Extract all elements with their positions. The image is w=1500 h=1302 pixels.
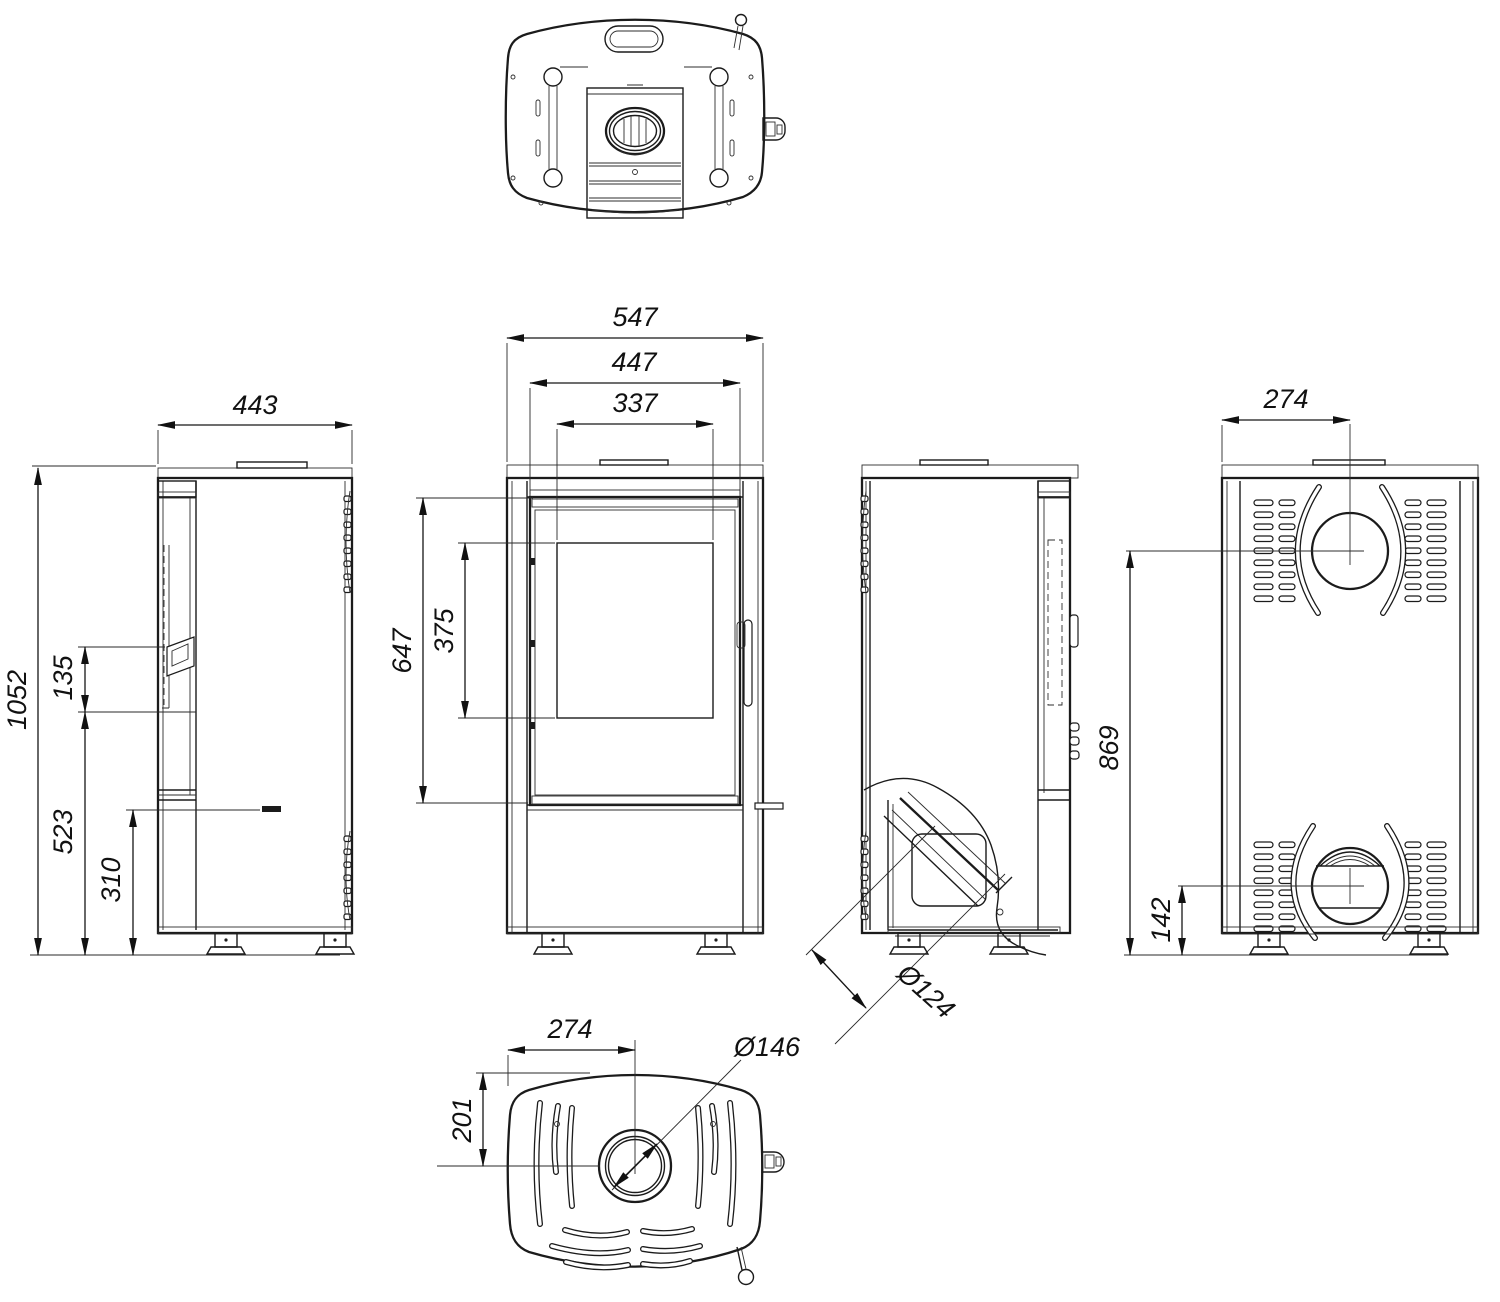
dim-side-width: 443 bbox=[232, 390, 277, 420]
drawing-sheet: 443 1052 135 523 310 547 447 337 647 375… bbox=[0, 0, 1500, 1302]
bottom-view bbox=[508, 1075, 784, 1285]
dim-lever-height: 310 bbox=[96, 857, 126, 902]
foot bbox=[316, 933, 354, 954]
right-side-section-view bbox=[861, 460, 1079, 955]
dim-front-width: 547 bbox=[612, 302, 658, 332]
dim-total-height: 1052 bbox=[2, 670, 32, 730]
top-view bbox=[506, 15, 785, 219]
dim-bottom-depth: 201 bbox=[447, 1097, 477, 1143]
top-plate bbox=[862, 465, 1078, 478]
dim-glass-width: 337 bbox=[612, 388, 658, 418]
cutaway-boundary bbox=[864, 778, 1046, 955]
foot bbox=[1250, 933, 1288, 954]
left-side-view bbox=[158, 462, 354, 954]
drawing-canvas: 443 1052 135 523 310 547 447 337 647 375… bbox=[0, 0, 1500, 1302]
ash-lever bbox=[755, 803, 783, 809]
dim-air-inlet-diameter: Ø124 bbox=[891, 957, 961, 1024]
dim-base-height: 523 bbox=[48, 809, 78, 854]
dimension-annotations: 443 1052 135 523 310 547 447 337 647 375… bbox=[2, 302, 1448, 1190]
dim-rear-flue-offset: 274 bbox=[1262, 384, 1308, 414]
dim-rear-flue-height: 869 bbox=[1094, 725, 1124, 770]
top-plate bbox=[158, 468, 352, 478]
door-glass bbox=[557, 543, 713, 718]
foot bbox=[534, 933, 572, 954]
dim-door-width: 447 bbox=[611, 347, 657, 377]
foot bbox=[207, 933, 245, 954]
dim-handle-span: 135 bbox=[48, 654, 78, 700]
damper-rod-knob bbox=[736, 15, 747, 26]
foot bbox=[697, 933, 735, 954]
door-handle-edge bbox=[1070, 615, 1078, 647]
dim-door-height: 647 bbox=[387, 627, 417, 673]
dim-rear-inlet-height: 142 bbox=[1146, 897, 1176, 942]
body-outline bbox=[507, 478, 763, 933]
air-control-lever bbox=[262, 806, 281, 812]
front-view bbox=[507, 460, 783, 954]
dim-glass-height: 375 bbox=[429, 607, 459, 653]
top-handle-slot bbox=[605, 26, 663, 52]
damper-rod-knob bbox=[739, 1270, 754, 1285]
dim-bottom-offset: 274 bbox=[546, 1014, 592, 1044]
foot bbox=[1410, 933, 1448, 954]
body-outline bbox=[158, 478, 352, 933]
dim-bottom-opening-diameter: Ø146 bbox=[733, 1032, 801, 1062]
rear-view bbox=[1126, 424, 1478, 954]
top-plate bbox=[507, 465, 763, 478]
